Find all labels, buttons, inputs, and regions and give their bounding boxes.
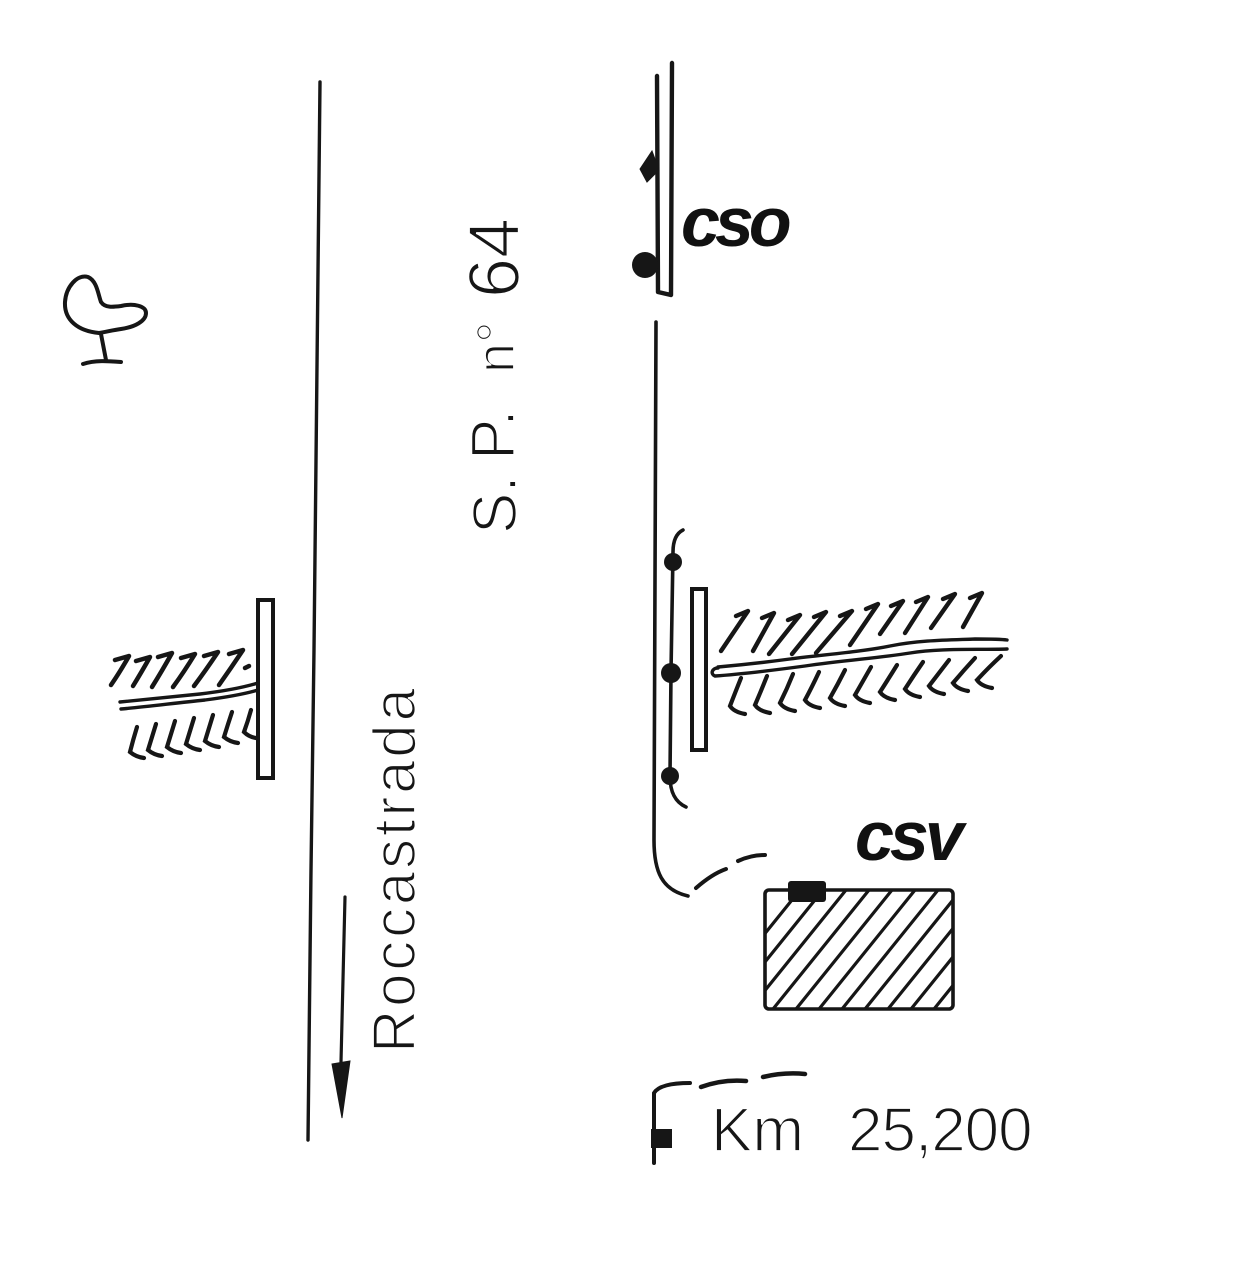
svg-text:64: 64 <box>455 218 535 298</box>
svg-text:n°: n° <box>466 321 526 373</box>
svg-text:cso: cso <box>681 183 790 261</box>
svg-text:25,200: 25,200 <box>848 1096 1032 1165</box>
svg-text:P.: P. <box>459 409 528 460</box>
svg-text:Km: Km <box>711 1096 804 1165</box>
svg-text:Roccastrada: Roccastrada <box>361 685 428 1053</box>
svg-text:S.: S. <box>461 475 530 534</box>
svg-text:csv: csv <box>855 797 968 875</box>
